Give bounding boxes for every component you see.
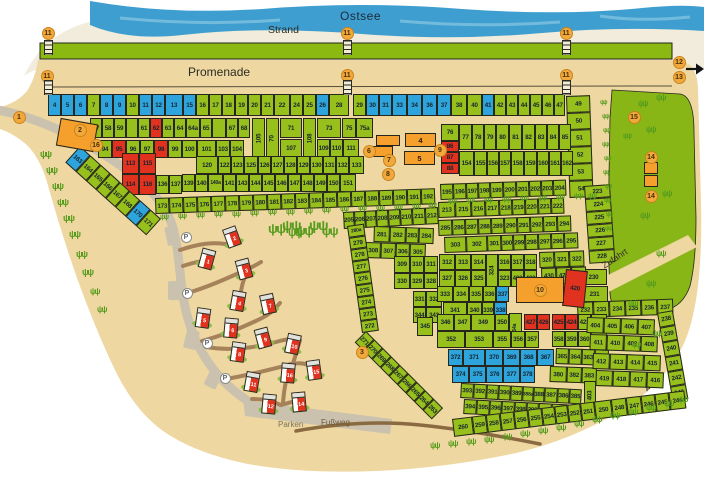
plot-346: 346 — [437, 314, 454, 331]
map-marker-12: 12 — [673, 56, 686, 69]
plot-161: 161 — [549, 151, 561, 176]
plot-149: 149 — [314, 174, 327, 192]
grass-tuft-icon: ψψ — [520, 195, 528, 202]
hut-body: 6 — [223, 317, 239, 338]
plot-45: 45 — [530, 94, 542, 116]
hut-body: 16 — [280, 362, 296, 383]
grass-tuft-icon: ψψ — [97, 306, 106, 314]
grass-tuft-icon: ψψ — [603, 128, 609, 134]
plot-179: 179 — [239, 195, 254, 211]
plot-10: 10 — [126, 94, 139, 116]
plot-287: 287 — [465, 219, 479, 235]
plot-388: 388 — [533, 387, 545, 403]
plot-68: 68 — [238, 118, 250, 138]
plot-63: 63 — [162, 118, 174, 138]
grass-tuft-icon: ψψ — [448, 198, 456, 205]
hut-number: 16 — [285, 369, 294, 383]
plot-19: 19 — [235, 94, 248, 116]
hut-number: 8 — [235, 348, 245, 362]
plot-415: 415 — [643, 355, 661, 372]
hut-number: 5 — [200, 314, 210, 328]
plot-25: 25 — [303, 94, 316, 116]
grass-tuft-icon: ψψ — [602, 114, 608, 120]
plot-11: 11 — [139, 94, 152, 116]
plot-150: 150 — [327, 174, 340, 192]
map-marker-2: 2 — [74, 124, 87, 137]
plot-40: 40 — [467, 94, 482, 116]
plot-419: 419 — [595, 370, 613, 387]
rental-hut-15: 15 — [306, 359, 323, 381]
hut-number: 15 — [311, 365, 321, 379]
plot-327: 327 — [439, 270, 455, 287]
plot-18: 18 — [222, 94, 235, 116]
plot-61: 61 — [138, 118, 150, 138]
plot-141: 141 — [223, 174, 236, 192]
plot-46: 46 — [542, 94, 554, 116]
plot-116: 116 — [139, 174, 156, 195]
plot-356: 356 — [511, 331, 525, 348]
plot-368: 368 — [520, 349, 537, 366]
plot-300: 300 — [501, 235, 514, 251]
grass-tuft-icon: ψψ — [322, 225, 337, 237]
plot-317: 317 — [511, 254, 524, 270]
parking-label: Parken — [278, 420, 303, 429]
plot-75a: 75a — [356, 118, 373, 138]
plot-211: 211 — [412, 208, 426, 226]
plot-strip: 374375376377378 — [452, 366, 535, 383]
plot-345: 345 — [417, 317, 433, 336]
plot-15: 15 — [183, 94, 196, 116]
plot-strip: 419418417416 — [595, 370, 664, 388]
plot-159: 159 — [524, 151, 537, 176]
grass-tuft-icon: ψψ — [662, 190, 671, 198]
plot-312: 312 — [439, 254, 455, 270]
beach-stairs-icon — [343, 40, 352, 55]
plot-260: 260 — [452, 417, 474, 437]
plot-322: 322 — [569, 250, 585, 267]
plot-376: 376 — [486, 366, 503, 383]
grass-tuft-icon: ψψ — [605, 184, 611, 190]
grass-tuft-icon: ψψ — [656, 250, 665, 258]
plot-strip: 427426 — [524, 314, 550, 330]
plot-113: 113 — [122, 153, 139, 174]
plot-299: 299 — [513, 234, 526, 250]
hut-body: 15 — [306, 359, 323, 381]
grass-tuft-icon: ψψ — [646, 404, 655, 412]
plot-75: 75 — [342, 118, 356, 138]
plot-4: 4 — [48, 94, 61, 116]
plot-387: 387 — [544, 387, 558, 403]
plot-316: 316 — [498, 254, 511, 270]
grass-tuft-icon: ψψ — [466, 438, 475, 446]
beach-stairs-icon — [44, 40, 53, 55]
plot-377: 377 — [503, 366, 520, 383]
grass-tuft-icon: ψψ — [502, 196, 510, 203]
hut-body: 14 — [291, 391, 307, 412]
hut-number: 12 — [266, 400, 275, 414]
plot-369: 369 — [503, 349, 520, 366]
dune-green-strip — [40, 43, 672, 59]
hut-number: 6 — [228, 324, 237, 338]
grass-tuft-icon: ψψ — [606, 212, 612, 218]
plot-38: 38 — [451, 94, 467, 116]
plot-313: 313 — [455, 254, 471, 270]
building — [644, 162, 658, 174]
beach-stairs-icon — [562, 80, 571, 95]
grass-tuft-icon: ψψ — [520, 430, 529, 438]
plot-350: 350 — [495, 314, 509, 331]
grass-tuft-icon: ψψ — [232, 211, 240, 218]
plot-367: 367 — [537, 349, 554, 366]
plot-408: 408 — [640, 336, 658, 353]
grass-tuft-icon: ψψ — [632, 342, 640, 349]
grass-tuft-icon: ψψ — [652, 330, 661, 338]
plot-329: 329 — [410, 273, 424, 289]
grass-tuft-icon: ψψ — [603, 170, 609, 176]
plot-297: 297 — [538, 233, 552, 249]
plot-413: 413 — [609, 354, 627, 371]
map-marker-16: 16 — [90, 139, 103, 152]
plot-294: 294 — [557, 215, 572, 231]
plot-234: 234 — [609, 300, 626, 317]
plot-412: 412 — [592, 353, 610, 370]
plot-335: 335 — [469, 286, 483, 302]
plot-321: 321 — [554, 251, 570, 268]
grass-tuft-icon: ψψ — [214, 211, 222, 218]
grass-tuft-icon: ψψ — [604, 156, 610, 162]
plot-strip: 281282283284 — [373, 226, 434, 244]
plot-331: 331 — [413, 291, 426, 307]
plot-417: 417 — [629, 371, 647, 388]
plot-411: 411 — [589, 334, 607, 351]
map-marker-11: 11 — [341, 27, 354, 40]
parking-marker: P — [202, 338, 213, 349]
grass-tuft-icon: ψψ — [664, 400, 673, 408]
plot-36: 36 — [422, 94, 437, 116]
plot-355: 355 — [493, 331, 511, 348]
plot-strip: 333334335336337 — [437, 286, 509, 302]
plot-180: 180 — [253, 194, 268, 210]
plot-131: 131 — [323, 156, 336, 174]
plot-85: 85 — [559, 124, 571, 150]
rental-hut-14: 14 — [291, 391, 307, 412]
plot-292: 292 — [530, 216, 544, 232]
plot-132: 132 — [336, 156, 349, 174]
grass-tuft-icon: ψψ — [484, 436, 493, 444]
plot-295: 295 — [564, 232, 579, 248]
building — [376, 135, 400, 146]
plot-123: 123 — [231, 156, 244, 174]
plot-285: 285 — [438, 220, 453, 236]
building — [644, 175, 658, 187]
plot-strip: 154155156157158159160161162 — [459, 151, 573, 176]
building-4: 4 — [405, 133, 436, 147]
plot-155: 155 — [474, 151, 487, 176]
grass-tuft-icon: ψψ — [250, 210, 258, 217]
map-marker-15: 15 — [628, 111, 641, 124]
plot-328: 328 — [424, 273, 438, 289]
plot-320: 320 — [539, 251, 555, 268]
plot-129: 129 — [297, 156, 310, 174]
plot-160: 160 — [537, 151, 549, 176]
plot-139: 139 — [182, 174, 195, 192]
plot-31: 31 — [379, 94, 392, 116]
plot-29: 29 — [353, 94, 366, 116]
plot-393: 393 — [460, 383, 474, 399]
plot-136: 136 — [156, 175, 169, 194]
plot-43: 43 — [506, 94, 518, 116]
plot-26: 26 — [316, 94, 329, 116]
plot-17: 17 — [209, 94, 222, 116]
plot-13: 13 — [165, 94, 183, 116]
plot-42: 42 — [494, 94, 506, 116]
plot-strip: 7575a — [342, 118, 373, 138]
map-marker-6: 6 — [363, 145, 376, 158]
plot-405: 405 — [603, 318, 621, 335]
grass-tuft-icon: ψψ — [322, 207, 330, 214]
plot-349: 349 — [471, 314, 495, 331]
parking-marker: P — [182, 288, 193, 299]
plot-128: 128 — [284, 156, 297, 174]
plot-strip: 420 — [562, 269, 588, 308]
map-marker-3: 3 — [356, 346, 369, 359]
plot-strip: 327326325 — [439, 270, 486, 287]
plot-strip: 316317318 — [498, 254, 537, 270]
grass-tuft-icon: ψψ — [502, 433, 511, 441]
plot-99: 99 — [168, 140, 182, 158]
plot-83: 83 — [535, 124, 547, 150]
plot-147: 147 — [288, 174, 301, 192]
plot-strip: 113115 — [122, 153, 156, 174]
grass-tuft-icon: ψψ — [57, 198, 68, 207]
plot-146: 146 — [275, 174, 288, 192]
plot-347: 347 — [454, 314, 471, 331]
plot-78: 78 — [472, 124, 484, 150]
promenade-label: Promenade — [188, 65, 250, 79]
plot-310: 310 — [410, 256, 424, 273]
plot-410: 410 — [606, 335, 624, 352]
plot-298: 298 — [525, 234, 539, 250]
plot-290: 290 — [504, 217, 518, 233]
plot-20: 20 — [248, 94, 261, 116]
plot-420: 420 — [562, 269, 588, 308]
parking-marker: P — [220, 373, 231, 384]
plot-330: 330 — [394, 273, 410, 289]
plot-404: 404 — [586, 317, 604, 334]
grass-tuft-icon: ψψ — [656, 94, 665, 102]
plot-318: 318 — [524, 254, 537, 270]
plot-64a: 64a — [186, 118, 200, 138]
plot-391: 391 — [486, 384, 499, 400]
plot-380: 380 — [549, 366, 567, 383]
plot-strip: 411410409408 — [589, 334, 658, 352]
plot-strip: 139140140a141143144145146147148149150151 — [182, 174, 356, 192]
plot-strip: 412413414415 — [592, 353, 661, 371]
plot-182: 182 — [281, 193, 296, 209]
grass-tuft-icon: ψψ — [602, 142, 608, 148]
plot-427: 427 — [524, 314, 537, 330]
plot-16: 16 — [196, 94, 209, 116]
parking-marker: P — [181, 232, 192, 243]
plot-77: 77 — [459, 124, 472, 150]
plot-301: 301 — [487, 235, 502, 251]
plot-309: 309 — [394, 256, 410, 273]
plot-337: 337 — [496, 286, 509, 302]
grass-tuft-icon: ψψ — [466, 197, 474, 204]
plot-80: 80 — [496, 124, 509, 150]
beach-label: Strand — [268, 24, 299, 36]
plot-strip: 105 — [252, 118, 265, 158]
grass-tuft-icon: ψψ — [484, 197, 492, 204]
plot-390: 390 — [498, 385, 511, 401]
plot-strip: 136137 — [156, 175, 182, 194]
grass-tuft-icon: ψψ — [610, 412, 619, 420]
grass-tuft-icon: ψψ — [623, 133, 631, 140]
plot-21: 21 — [261, 94, 274, 116]
grass-tuft-icon: ψψ — [604, 198, 610, 204]
plot-291: 291 — [517, 217, 531, 233]
plot-30: 30 — [366, 94, 379, 116]
grass-tuft-icon: ψψ — [178, 213, 186, 220]
parking-symbol-small: P — [646, 386, 651, 393]
plot-130: 130 — [310, 156, 323, 174]
plot-370: 370 — [485, 349, 503, 366]
plot-62: 62 — [150, 118, 162, 138]
plot-133: 133 — [349, 156, 364, 174]
plot-12: 12 — [152, 94, 165, 116]
grass-tuft-icon: ψψ — [588, 193, 596, 200]
plot-386: 386 — [557, 388, 570, 404]
plot-176: 176 — [197, 196, 212, 212]
plot-389: 389 — [510, 386, 523, 402]
plot-143: 143 — [236, 174, 249, 192]
plot-79: 79 — [484, 124, 496, 150]
plot-210: 210 — [400, 208, 413, 226]
plot-strip: 76 — [441, 124, 459, 141]
map-marker-13: 13 — [673, 71, 686, 84]
grass-tuft-icon: ψψ — [160, 214, 168, 221]
plot-293: 293 — [543, 216, 558, 232]
grass-tuft-icon: ψψ — [646, 280, 655, 288]
map-marker-9: 9 — [434, 144, 447, 157]
plot-353: 353 — [465, 331, 493, 348]
plot-302: 302 — [466, 235, 488, 252]
beach-stairs-icon — [44, 80, 53, 95]
plot-334: 334 — [453, 286, 469, 302]
grass-tuft-icon: ψψ — [286, 209, 294, 216]
grass-tuft-icon: ψψ — [304, 208, 312, 215]
plot-388a: 388a — [522, 386, 534, 402]
plot-44: 44 — [518, 94, 530, 116]
plot-357: 357 — [525, 331, 539, 348]
plot-71: 71 — [280, 118, 302, 138]
hut-number: 10 — [289, 340, 300, 354]
grass-tuft-icon: ψψ — [538, 427, 547, 435]
plot-9: 9 — [113, 94, 126, 116]
plot-323: 323 — [498, 270, 511, 287]
plot-115: 115 — [139, 153, 156, 174]
grass-tuft-icon: ψψ — [412, 203, 420, 210]
plot-8: 8 — [100, 94, 113, 116]
map-marker-1: 1 — [13, 111, 26, 124]
plot-88: 88 — [441, 163, 459, 174]
plot-unlabeled — [126, 118, 138, 138]
grass-tuft-icon: ψψ — [63, 214, 74, 223]
plot-272: 272 — [360, 319, 379, 333]
grass-tuft-icon: ψψ — [574, 420, 583, 428]
plot-289: 289 — [491, 218, 505, 234]
plot-208: 208 — [376, 210, 389, 228]
hut-number: 4 — [234, 297, 244, 311]
plot-173: 173 — [155, 198, 170, 214]
plot-125: 125 — [244, 156, 258, 174]
plot-70: 70 — [266, 118, 279, 158]
plot-212: 212 — [425, 207, 439, 225]
map-marker-10: 10 — [534, 284, 547, 297]
grass-tuft-icon: ψψ — [638, 100, 647, 108]
plot-424: 424 — [565, 314, 578, 330]
plot-137: 137 — [169, 175, 182, 194]
plot-324: 324 — [486, 254, 498, 287]
plot-strip: 320321322 — [539, 250, 585, 268]
grass-tuft-icon: ψψ — [76, 250, 87, 259]
grass-tuft-icon: ψψ — [628, 300, 637, 308]
plot-372: 372 — [448, 349, 463, 366]
grass-tuft-icon: ψψ — [268, 209, 276, 216]
grass-tuft-icon: ψψ — [628, 408, 637, 416]
plot-strip: 108 — [303, 118, 316, 158]
plot-strip: 324 — [486, 254, 498, 287]
plot-359: 359 — [565, 331, 578, 347]
grass-tuft-icon: ψψ — [40, 150, 51, 159]
grass-tuft-icon: ψψ — [605, 226, 611, 232]
plot-177: 177 — [211, 196, 226, 212]
rental-hut-10: 10 — [284, 333, 302, 355]
plot-178: 178 — [225, 195, 240, 211]
plot-47: 47 — [554, 94, 565, 116]
building-5: 5 — [404, 151, 435, 165]
plot-281: 281 — [373, 226, 390, 243]
grass-tuft-icon: ψψ — [640, 212, 649, 220]
plot-strip: 345 — [417, 317, 433, 336]
plot-41: 41 — [482, 94, 494, 116]
plot-406: 406 — [620, 318, 638, 335]
plot-strip: 346347349350 — [437, 314, 509, 331]
plot-100: 100 — [182, 140, 197, 158]
parking-bay — [168, 281, 181, 300]
sea-label: Ostsee — [340, 9, 381, 23]
plot-154: 154 — [459, 151, 474, 176]
plot-282: 282 — [389, 227, 406, 244]
plot-73: 73 — [317, 118, 341, 138]
rental-hut-5: 5 — [195, 307, 212, 329]
plot-392: 392 — [473, 384, 487, 400]
plot-371: 371 — [463, 349, 485, 366]
grass-tuft-icon: ψψ — [556, 424, 565, 432]
plot-strip: 312313314 — [439, 254, 486, 270]
plot-7: 7 — [87, 94, 100, 116]
plot-157: 157 — [499, 151, 511, 176]
hut-number: 7 — [265, 299, 276, 313]
plot-181: 181 — [267, 194, 282, 210]
grass-tuft-icon: ψψ — [196, 212, 204, 219]
plot-140: 140 — [195, 174, 208, 192]
footpath-label: Fußweg — [321, 418, 350, 427]
grass-tuft-icon: ψψ — [340, 206, 348, 213]
grass-tuft-icon: ψψ — [288, 228, 302, 239]
hut-body: 5 — [195, 307, 212, 329]
plot-6: 6 — [74, 94, 87, 116]
